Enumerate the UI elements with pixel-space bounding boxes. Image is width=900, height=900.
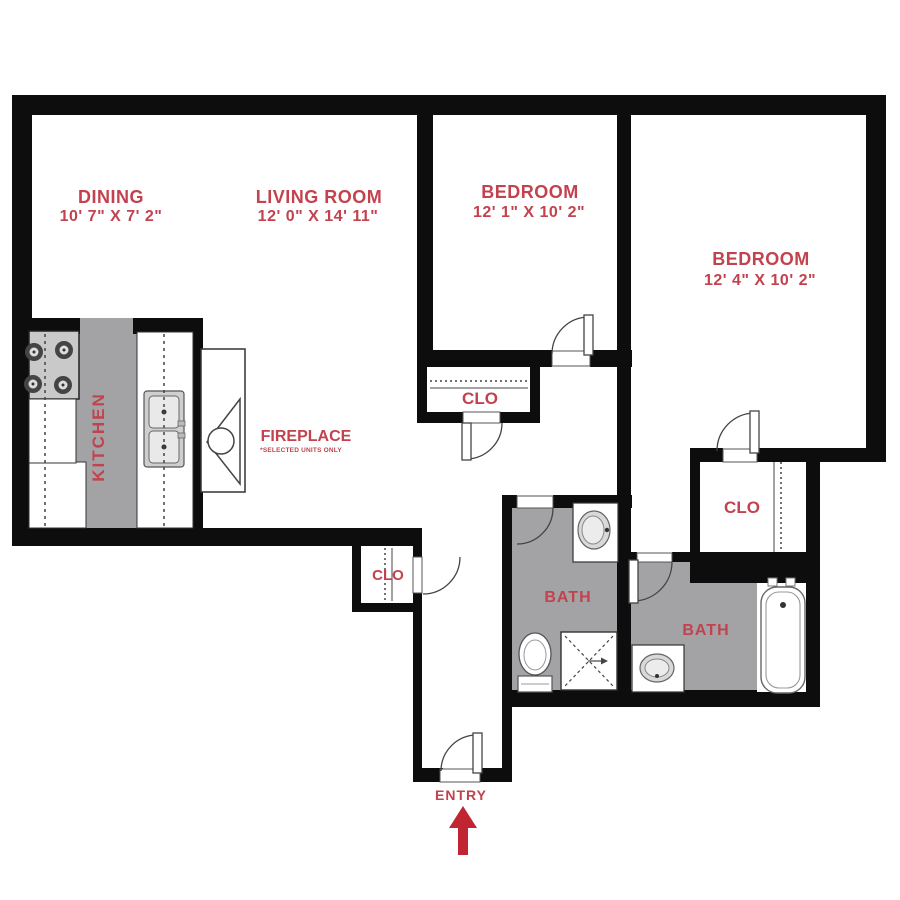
closet2-label: CLO	[724, 498, 760, 517]
fireplace-note: *SELECTED UNITS ONLY	[260, 447, 342, 454]
closet2-door	[717, 411, 759, 453]
entry-closet-label: CLO	[372, 567, 404, 584]
wall	[690, 552, 817, 583]
bath1-door-threshold	[517, 496, 553, 508]
wall	[417, 115, 433, 367]
stove-icon	[24, 331, 79, 399]
dining-dims: 10' 7" X 7' 2"	[60, 208, 163, 225]
bedroom1-door	[552, 315, 593, 355]
fireplace-icon	[201, 349, 245, 492]
entry-closet-door	[423, 557, 460, 594]
wall	[590, 350, 632, 367]
bedroom2-label: BEDROOM	[712, 249, 810, 269]
entry-closet-door-threshold	[413, 557, 422, 593]
pedestal-sink-icon	[632, 645, 684, 692]
wall	[413, 768, 443, 782]
wall	[480, 768, 512, 782]
bathtub-icon	[757, 578, 806, 693]
door-leaf	[750, 411, 759, 453]
fireplace-label: FIREPLACE	[261, 428, 352, 445]
bath1-label: BATH	[544, 589, 591, 606]
kitchen-island-counter	[137, 332, 193, 528]
entry-label: ENTRY	[435, 787, 487, 803]
living-room-dims: 12' 0" X 14' 11"	[258, 208, 379, 225]
door-leaf	[629, 560, 638, 603]
dining-label: DINING	[78, 187, 144, 207]
door-leaf	[473, 733, 482, 773]
wall	[502, 495, 512, 782]
wall	[690, 448, 723, 462]
shower-icon	[561, 632, 617, 690]
wall	[413, 593, 422, 782]
bedroom2-dims: 12' 4" X 10' 2"	[704, 272, 816, 289]
wall	[617, 115, 631, 707]
wall	[502, 495, 517, 508]
wall	[413, 528, 422, 557]
wall	[417, 350, 552, 367]
wall	[672, 552, 690, 562]
entry-door	[441, 733, 482, 773]
door-leaf	[584, 315, 593, 355]
wall	[352, 603, 422, 612]
wall	[352, 528, 361, 612]
wall	[500, 412, 540, 423]
bathroom-sink-icon	[573, 503, 618, 562]
closet1-label: CLO	[462, 389, 498, 408]
entry-arrow-icon	[449, 806, 477, 855]
bath2-label: BATH	[682, 622, 729, 639]
door-leaf	[462, 423, 471, 460]
wall	[806, 448, 820, 707]
wall	[12, 95, 886, 115]
wall	[757, 448, 886, 462]
wall	[417, 412, 463, 423]
toilet-icon	[518, 633, 552, 692]
bath2-door-threshold	[637, 553, 672, 562]
bedroom1-dims: 12' 1" X 10' 2"	[473, 204, 585, 221]
kitchen-entry-floor	[80, 318, 133, 334]
living-room-label: LIVING ROOM	[256, 187, 383, 207]
floor-plan-svg: DINING 10' 7" X 7' 2" LIVING ROOM 12' 0"…	[0, 0, 900, 900]
closet1-door	[462, 423, 502, 460]
kitchen-label: KITCHEN	[89, 392, 108, 482]
bedroom1-label: BEDROOM	[481, 182, 579, 202]
closet1-door-threshold	[463, 412, 500, 423]
floor-plan-canvas: DINING 10' 7" X 7' 2" LIVING ROOM 12' 0"…	[0, 0, 900, 900]
wall	[866, 95, 886, 462]
